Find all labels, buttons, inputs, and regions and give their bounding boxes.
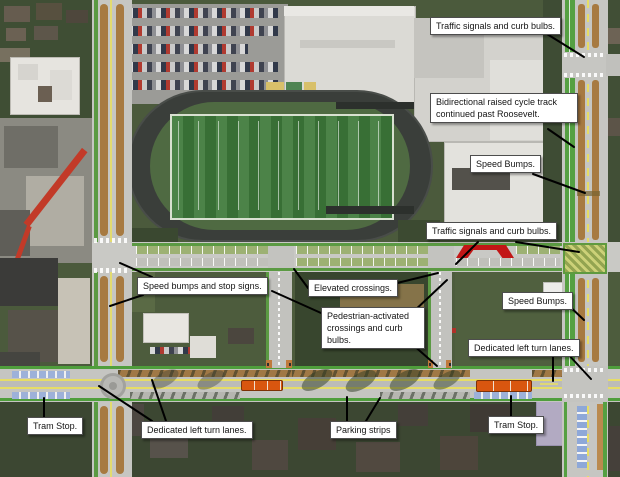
annotation-text: Tram Stop. — [33, 421, 77, 431]
annotation-tram-stop-east: Tram Stop. — [488, 416, 544, 434]
annotation-line — [152, 380, 166, 421]
annotation-text: Traffic signals and curb bulbs. — [436, 21, 555, 31]
annotation-text: Elevated crossings. — [314, 283, 392, 293]
annotation-line — [294, 269, 308, 288]
annotation-parking-strips: Parking strips — [330, 421, 397, 439]
annotation-text: Pedestrian-activated crossings and curb … — [327, 311, 409, 345]
annotation-cycle-track: Bidirectional raised cycle track continu… — [430, 93, 578, 123]
annotation-line — [110, 295, 143, 306]
annotation-line — [120, 263, 152, 277]
annotation-speed-bumps-north: Speed Bumps. — [470, 155, 541, 173]
annotation-traffic-signals-mid: Traffic signals and curb bulbs. — [426, 222, 557, 240]
annotation-line — [516, 242, 579, 252]
site-plan-map: Traffic signals and curb bulbs.Bidirecti… — [0, 0, 620, 477]
annotation-pedestrian-crossings: Pedestrian-activated crossings and curb … — [321, 307, 425, 349]
annotation-line — [99, 386, 152, 421]
annotation-text: Dedicated left turn lanes. — [147, 425, 247, 435]
annotation-line — [456, 242, 478, 264]
annotation-speed-bumps-east: Speed Bumps. — [502, 292, 573, 310]
annotation-left-turn-lanes-west: Dedicated left turn lanes. — [141, 421, 253, 439]
annotation-speed-bumps-stop-signs: Speed bumps and stop signs. — [137, 277, 268, 295]
annotation-line — [393, 273, 438, 284]
annotation-line — [547, 34, 584, 57]
annotation-line — [366, 398, 380, 421]
annotation-text: Speed Bumps. — [508, 296, 567, 306]
annotation-text: Speed Bumps. — [476, 159, 535, 169]
annotation-line — [533, 174, 585, 193]
annotation-text: Traffic signals and curb bulbs. — [432, 226, 551, 236]
annotation-text: Dedicated left turn lanes. — [474, 343, 574, 353]
annotation-tram-stop-west: Tram Stop. — [27, 417, 83, 435]
annotation-text: Bidirectional raised cycle track continu… — [436, 97, 557, 119]
annotation-traffic-signals-north: Traffic signals and curb bulbs. — [430, 17, 561, 35]
annotation-left-turn-lanes-east: Dedicated left turn lanes. — [468, 339, 580, 357]
annotation-text: Speed bumps and stop signs. — [143, 281, 262, 291]
annotation-elevated-crossings: Elevated crossings. — [308, 279, 398, 297]
annotation-line — [548, 129, 574, 147]
annotation-text: Parking strips — [336, 425, 391, 435]
annotation-text: Tram Stop. — [494, 420, 538, 430]
